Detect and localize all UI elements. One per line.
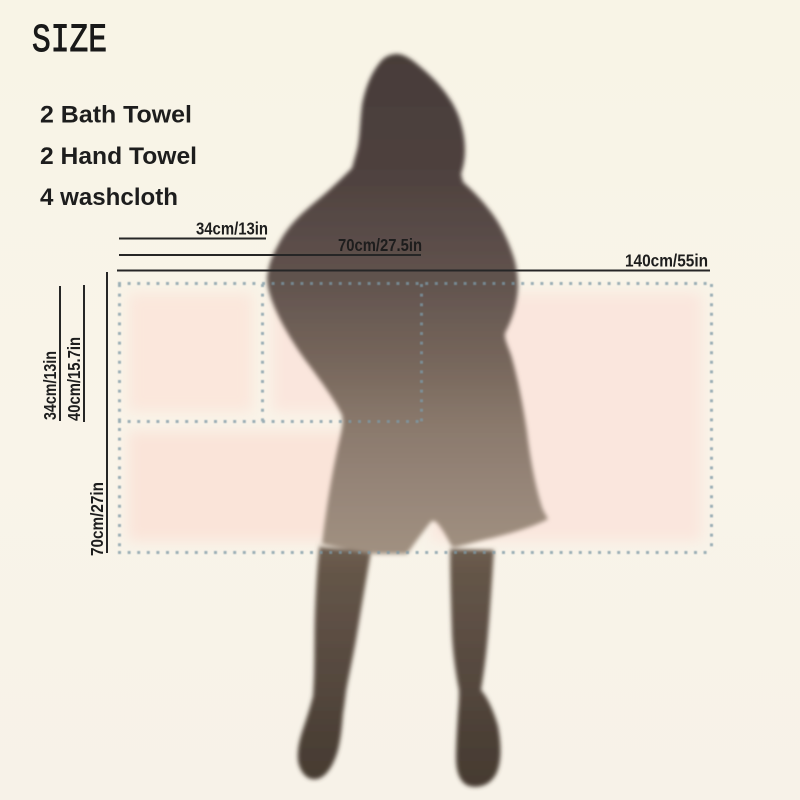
svg-text:40cm/15.7in: 40cm/15.7in: [64, 337, 84, 421]
svg-text:70cm/27.5in: 70cm/27.5in: [338, 235, 422, 255]
svg-text:2 Hand Towel: 2 Hand Towel: [40, 143, 197, 170]
svg-text:140cm/55in: 140cm/55in: [625, 251, 708, 271]
svg-text:34cm/13in: 34cm/13in: [196, 219, 268, 239]
svg-text:34cm/13in: 34cm/13in: [40, 351, 60, 420]
svg-text:SIZE: SIZE: [32, 19, 107, 64]
svg-text:2 Bath Towel: 2 Bath Towel: [40, 102, 192, 129]
svg-text:4 washcloth: 4 washcloth: [40, 184, 178, 211]
svg-text:70cm/27in: 70cm/27in: [87, 482, 107, 556]
